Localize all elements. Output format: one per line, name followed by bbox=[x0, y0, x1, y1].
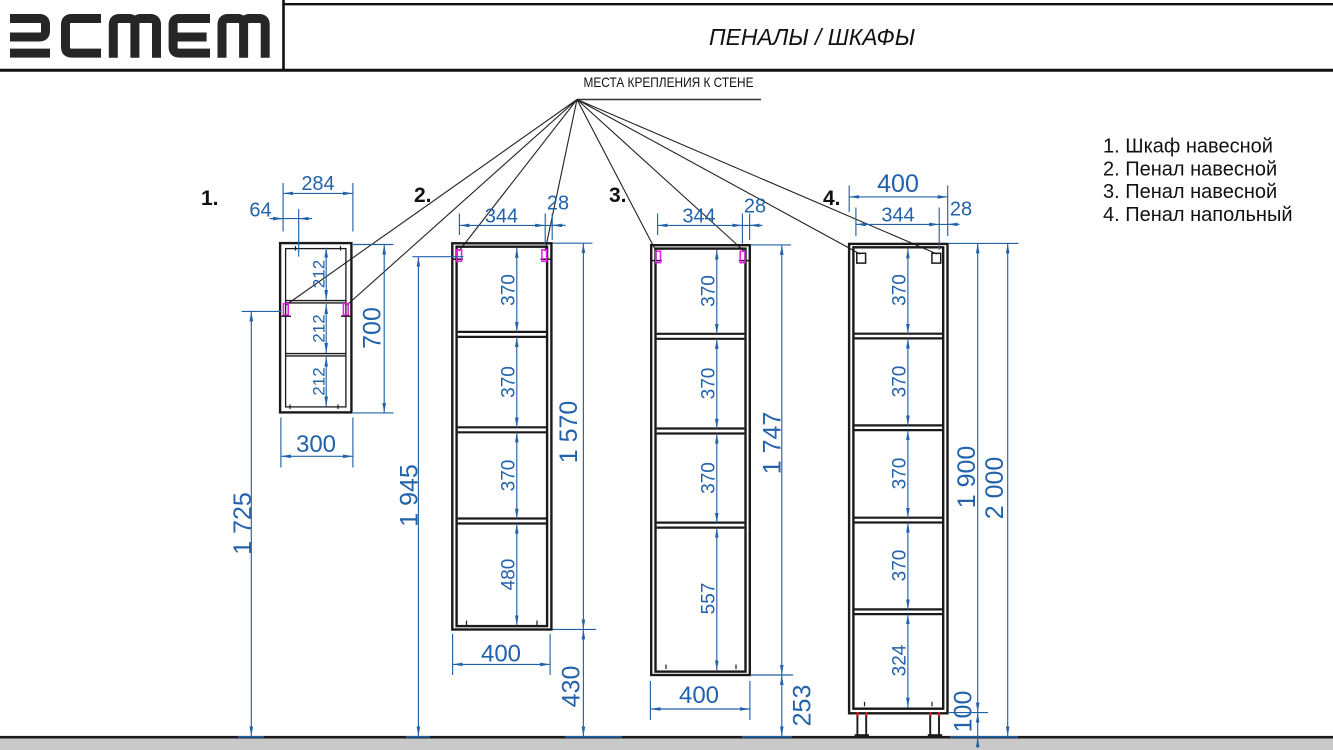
svg-text:2 000: 2 000 bbox=[981, 457, 1009, 520]
svg-text:МЕСТА КРЕПЛЕНИЯ К СТЕНЕ: МЕСТА КРЕПЛЕНИЯ К СТЕНЕ bbox=[584, 74, 754, 90]
svg-text:400: 400 bbox=[679, 682, 719, 709]
svg-text:430: 430 bbox=[558, 666, 586, 708]
svg-text:370: 370 bbox=[499, 460, 520, 492]
svg-text:1 747: 1 747 bbox=[759, 412, 787, 475]
svg-text:344: 344 bbox=[485, 206, 518, 228]
svg-text:28: 28 bbox=[547, 193, 569, 215]
svg-text:370: 370 bbox=[699, 275, 720, 307]
svg-text:2.: 2. bbox=[414, 184, 432, 207]
svg-text:ПЕНАЛЫ / ШКАФЫ: ПЕНАЛЫ / ШКАФЫ bbox=[709, 24, 916, 50]
svg-text:28: 28 bbox=[744, 196, 766, 218]
svg-text:344: 344 bbox=[682, 206, 715, 228]
svg-text:480: 480 bbox=[499, 559, 520, 591]
svg-text:4. Пенал напольный: 4. Пенал напольный bbox=[1103, 204, 1293, 226]
svg-text:370: 370 bbox=[890, 550, 911, 582]
svg-text:284: 284 bbox=[301, 173, 334, 195]
svg-text:370: 370 bbox=[890, 458, 911, 490]
svg-text:300: 300 bbox=[296, 431, 336, 458]
svg-text:3. Пенал навесной: 3. Пенал навесной bbox=[1103, 181, 1277, 203]
svg-text:212: 212 bbox=[310, 367, 329, 395]
svg-text:370: 370 bbox=[699, 462, 720, 494]
svg-text:253: 253 bbox=[789, 685, 817, 727]
svg-text:1 725: 1 725 bbox=[229, 492, 257, 555]
svg-text:370: 370 bbox=[499, 274, 520, 306]
svg-text:1 900: 1 900 bbox=[953, 446, 981, 509]
svg-text:100: 100 bbox=[950, 691, 978, 733]
svg-text:370: 370 bbox=[499, 366, 520, 398]
svg-text:370: 370 bbox=[890, 274, 911, 306]
svg-text:1 570: 1 570 bbox=[555, 401, 583, 464]
svg-text:557: 557 bbox=[699, 583, 720, 615]
svg-text:370: 370 bbox=[699, 368, 720, 400]
svg-text:400: 400 bbox=[877, 170, 919, 198]
svg-text:212: 212 bbox=[310, 314, 329, 342]
svg-text:324: 324 bbox=[890, 644, 911, 676]
svg-text:1.: 1. bbox=[201, 187, 219, 210]
svg-text:1 945: 1 945 bbox=[396, 464, 424, 527]
svg-text:344: 344 bbox=[881, 205, 914, 227]
svg-text:64: 64 bbox=[249, 200, 271, 222]
svg-text:4.: 4. bbox=[823, 187, 841, 210]
svg-text:400: 400 bbox=[481, 641, 521, 668]
svg-text:1. Шкаф навесной: 1. Шкаф навесной bbox=[1103, 136, 1273, 158]
svg-text:700: 700 bbox=[359, 307, 387, 349]
svg-text:370: 370 bbox=[890, 366, 911, 398]
svg-text:212: 212 bbox=[310, 260, 329, 288]
svg-text:2. Пенал навесной: 2. Пенал навесной bbox=[1103, 158, 1277, 180]
svg-text:28: 28 bbox=[950, 198, 972, 220]
svg-text:3.: 3. bbox=[609, 184, 627, 207]
